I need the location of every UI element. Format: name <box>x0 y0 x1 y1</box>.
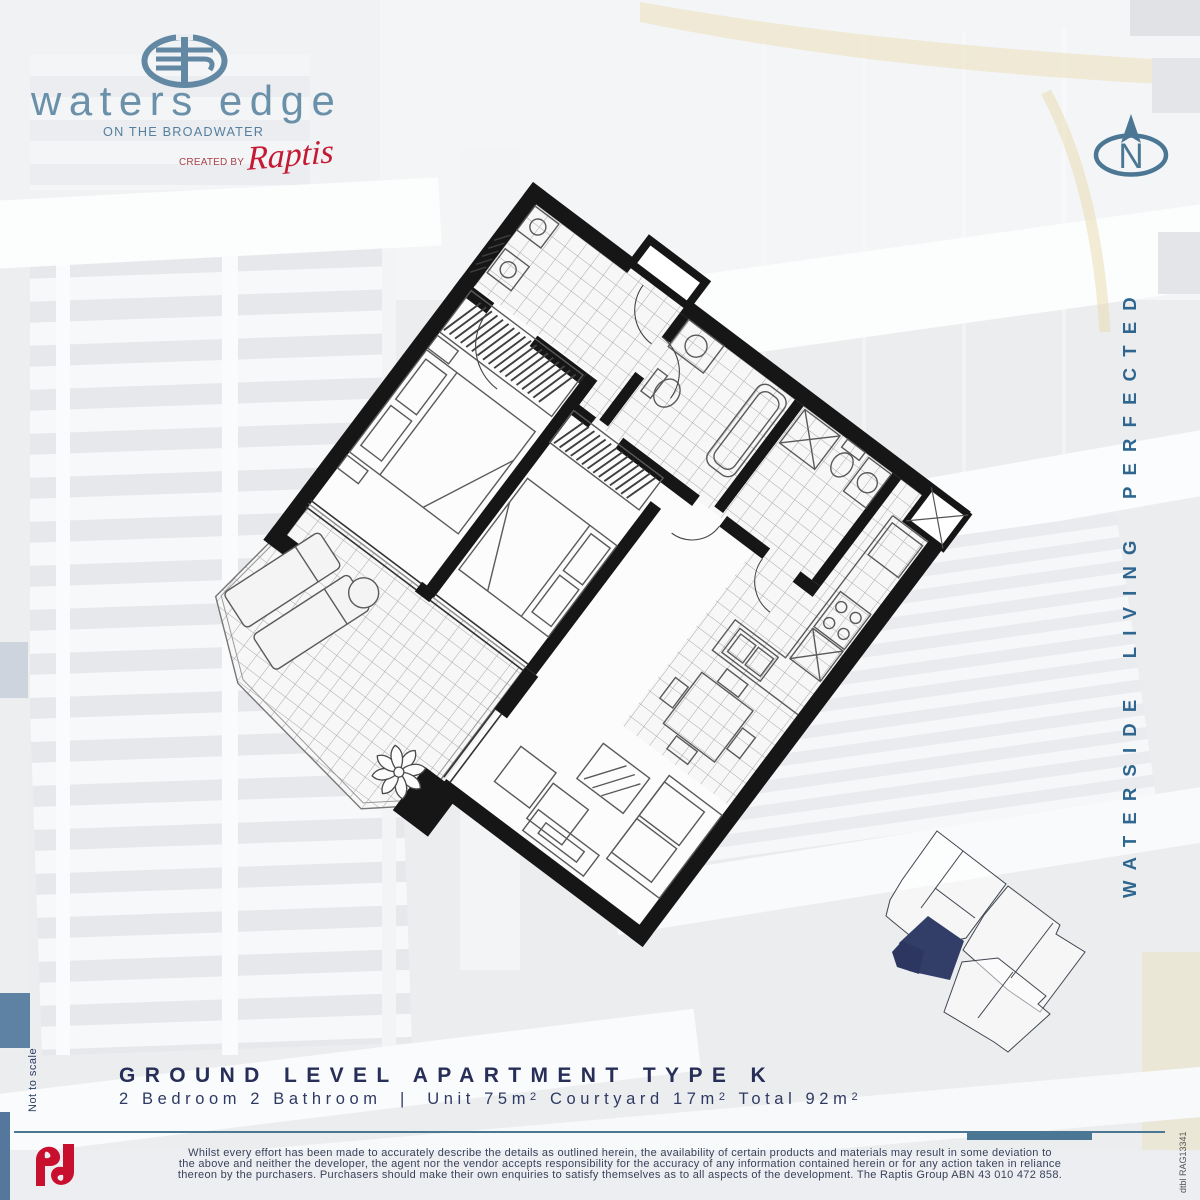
svg-text:N: N <box>1118 137 1143 176</box>
